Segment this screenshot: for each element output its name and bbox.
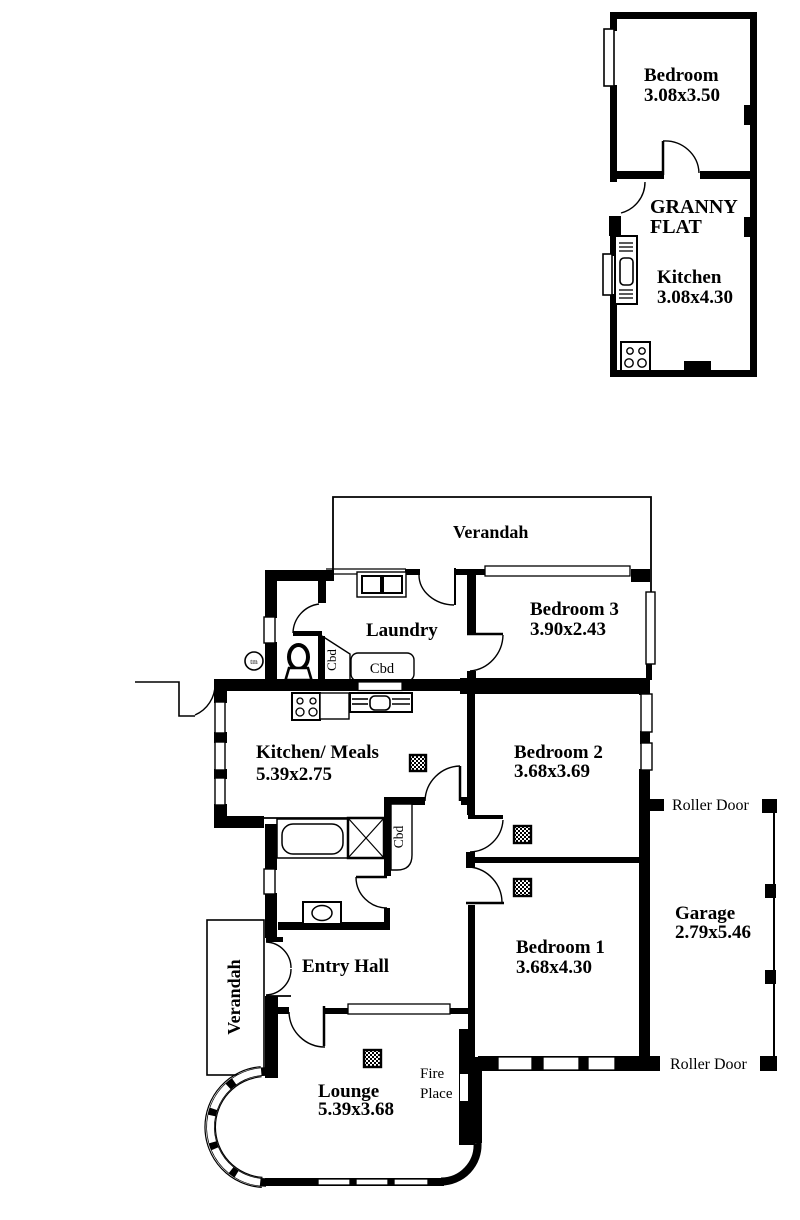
svg-text:Kitchen: Kitchen: [657, 267, 722, 288]
svg-text:Cbd: Cbd: [324, 649, 339, 671]
svg-text:Cbd: Cbd: [391, 826, 406, 849]
svg-text:Verandah: Verandah: [224, 959, 244, 1034]
svg-text:Place: Place: [420, 1086, 453, 1102]
svg-text:Fire: Fire: [420, 1066, 445, 1082]
svg-text:Garage: Garage: [675, 903, 735, 924]
svg-text:Bedroom 2: Bedroom 2: [514, 742, 603, 763]
svg-text:3.68x4.30: 3.68x4.30: [516, 957, 592, 978]
svg-text:Bedroom 1: Bedroom 1: [516, 937, 605, 958]
svg-text:3.08x3.50: 3.08x3.50: [644, 85, 720, 106]
svg-text:Entry Hall: Entry Hall: [302, 956, 389, 977]
svg-text:3.08x4.30: 3.08x4.30: [657, 287, 733, 308]
svg-text:Bedroom 3: Bedroom 3: [530, 599, 619, 620]
svg-text:FLAT: FLAT: [650, 216, 703, 238]
svg-text:2.79x5.46: 2.79x5.46: [675, 922, 751, 943]
svg-text:Verandah: Verandah: [453, 522, 528, 542]
svg-text:Roller Door: Roller Door: [670, 1056, 748, 1073]
svg-text:GRANNY: GRANNY: [650, 196, 738, 218]
svg-text:Roller Door: Roller Door: [672, 797, 750, 814]
svg-text:Bedroom: Bedroom: [644, 65, 719, 86]
svg-text:Cbd: Cbd: [370, 661, 395, 677]
svg-text:tm: tm: [250, 658, 258, 666]
svg-text:5.39x3.68: 5.39x3.68: [318, 1099, 394, 1120]
svg-text:5.39x2.75: 5.39x2.75: [256, 764, 332, 785]
svg-text:Laundry: Laundry: [366, 620, 438, 641]
svg-text:Kitchen/ Meals: Kitchen/ Meals: [256, 742, 379, 763]
svg-text:3.90x2.43: 3.90x2.43: [530, 619, 606, 640]
svg-text:3.68x3.69: 3.68x3.69: [514, 761, 590, 782]
